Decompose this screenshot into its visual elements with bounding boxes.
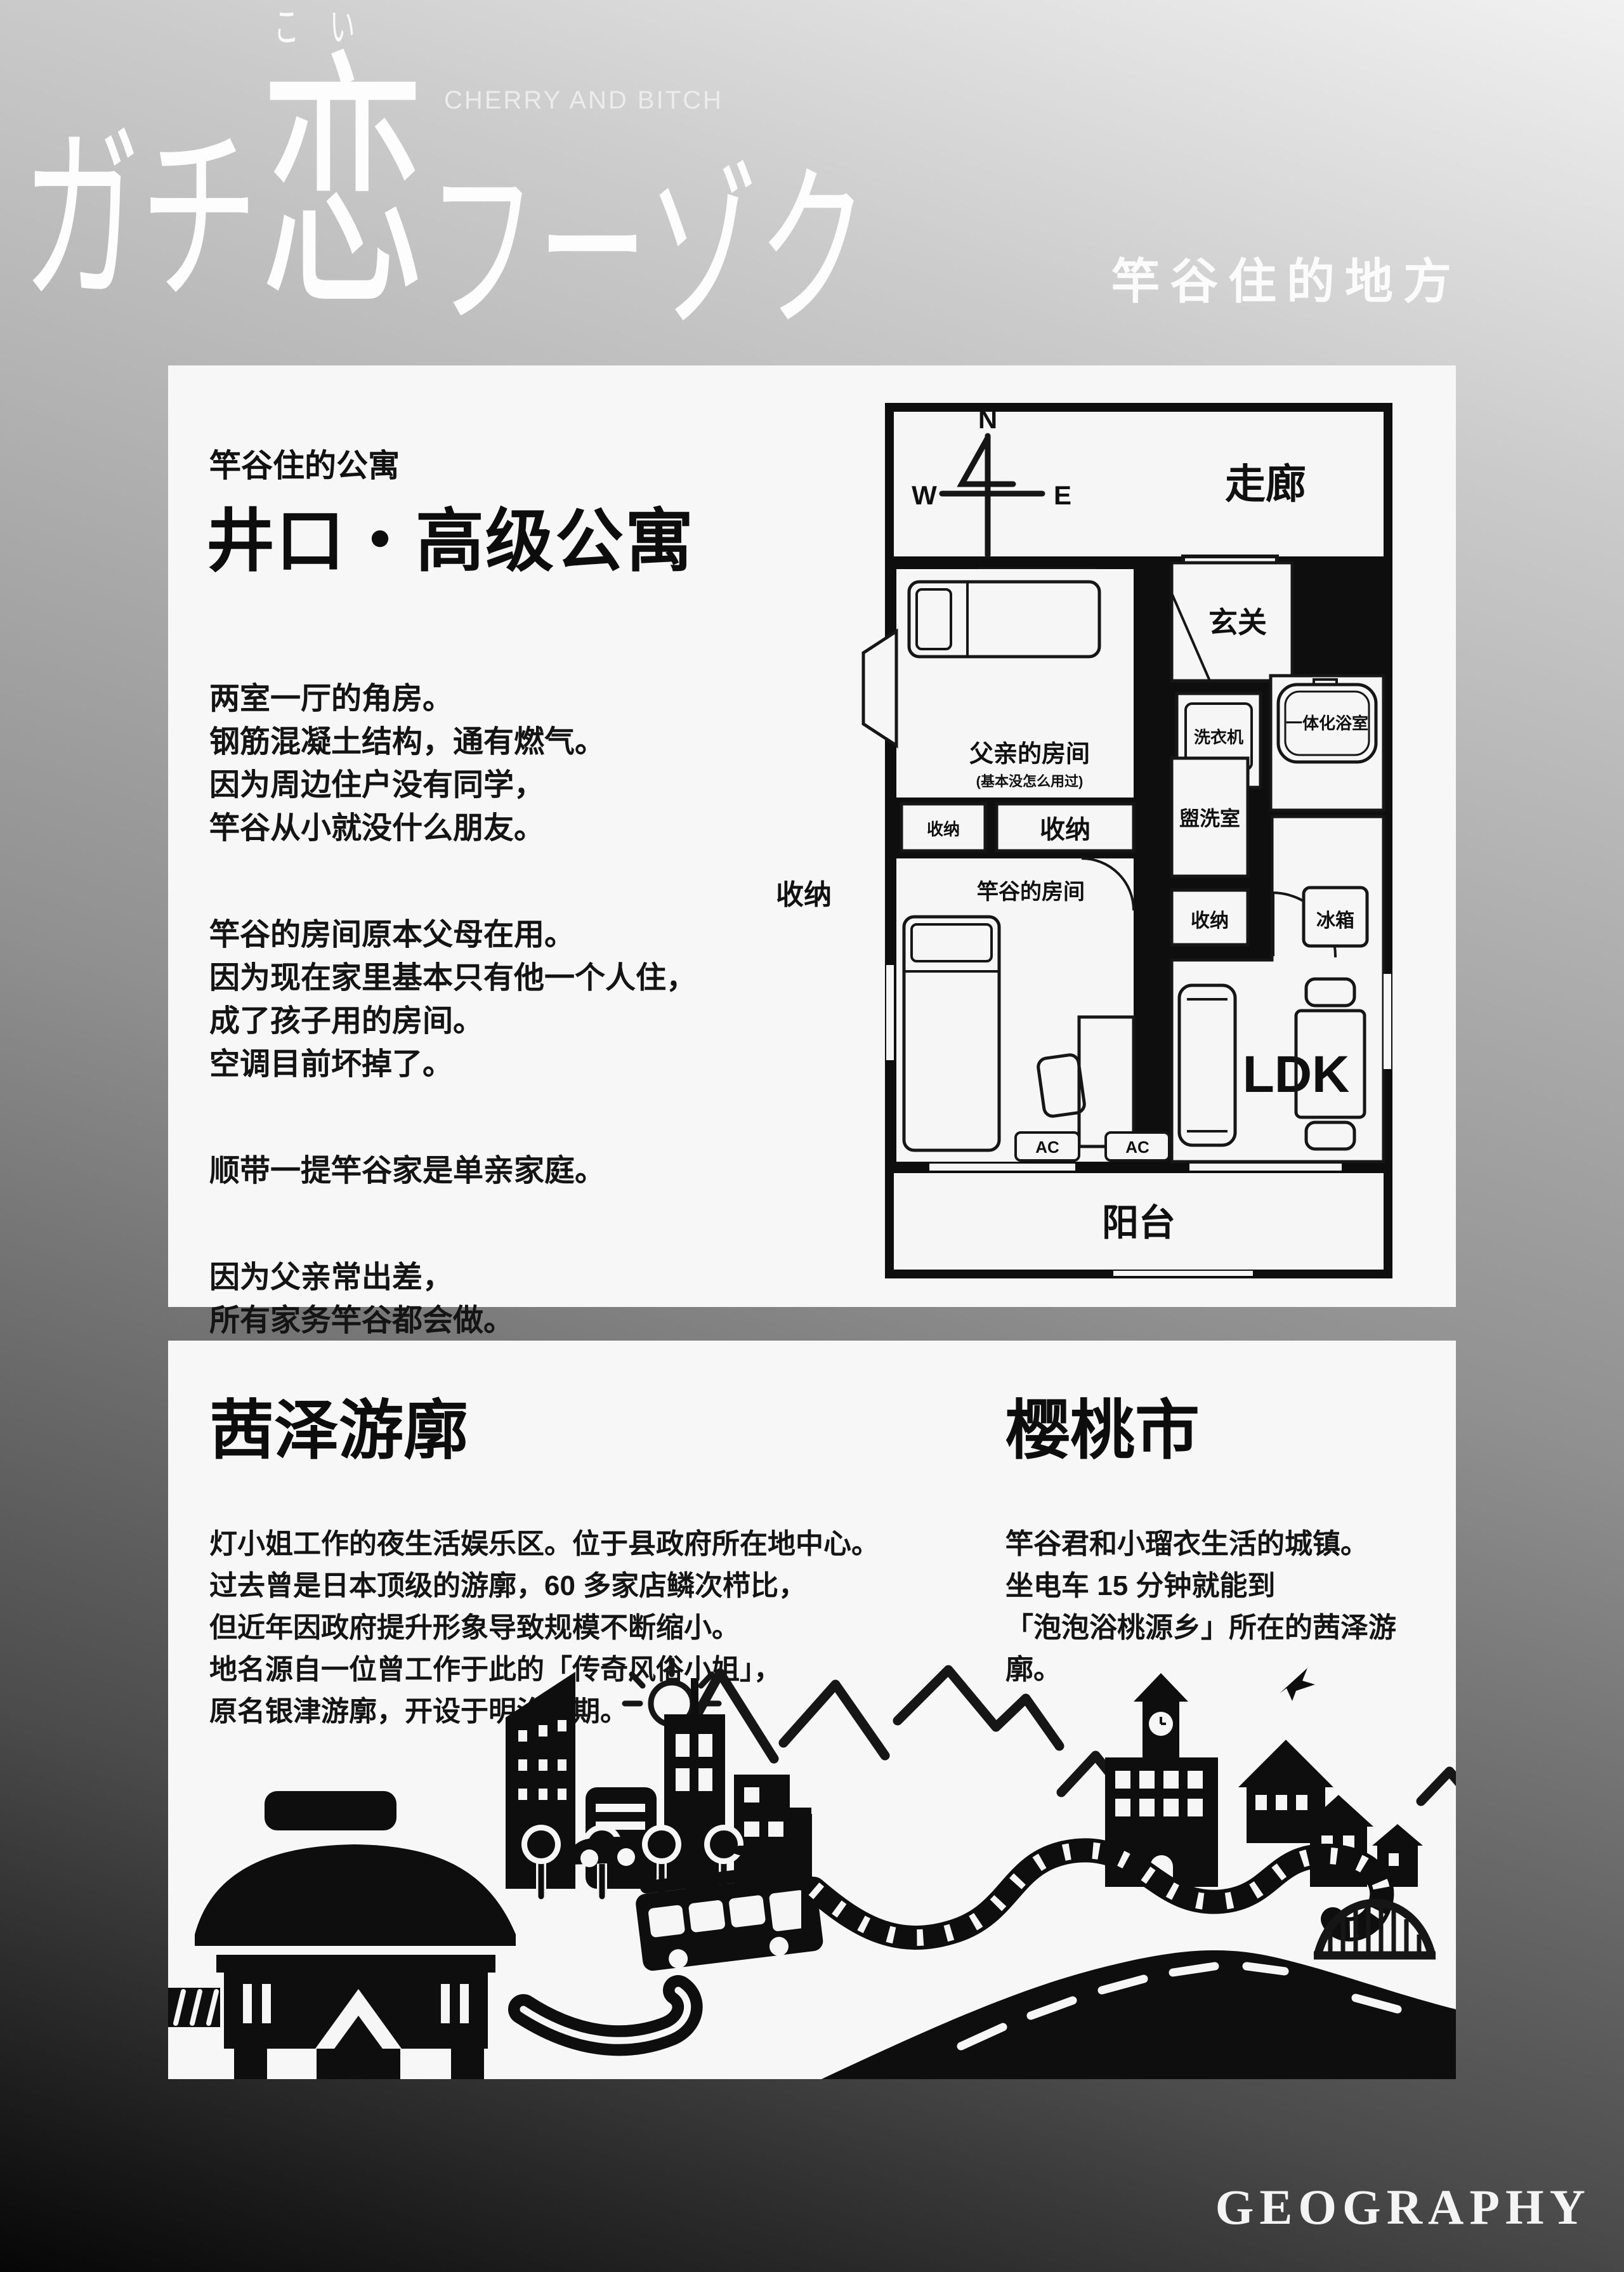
town-illustration: ♨ xyxy=(168,1635,1456,2079)
logo-part3: フーゾク xyxy=(428,162,868,339)
svg-text:(基本没怎么用过): (基本没怎么用过) xyxy=(976,773,1084,789)
winding-road xyxy=(814,1850,1382,1938)
svg-text:W: W xyxy=(912,480,937,510)
floorplan: 走廊 N S W E xyxy=(885,403,1392,1278)
closet-hall: 收纳 xyxy=(1172,890,1248,945)
city-title: 樱桃市 xyxy=(1005,1379,1200,1472)
unit-bath-room: 一体化浴室 xyxy=(1271,676,1384,810)
footer-geography-label: GEOGRAPHY xyxy=(1215,2179,1591,2236)
svg-text:AC: AC xyxy=(1035,1138,1059,1157)
svg-text:走廊: 走廊 xyxy=(1225,461,1306,507)
svg-text:收纳: 收纳 xyxy=(1191,910,1229,931)
closet-big: 收纳 xyxy=(997,804,1134,851)
bathhouse-path xyxy=(523,1990,688,2040)
road-stub xyxy=(168,1988,220,2027)
svg-text:一体化浴室: 一体化浴室 xyxy=(1286,714,1368,733)
poster-page: ガチ こい 恋 フーゾク CHERRY AND BITCH 竿谷住的地方 竿谷住… xyxy=(0,0,1624,2272)
svg-text:盥洗室: 盥洗室 xyxy=(1179,807,1240,830)
closet-father: 收纳 xyxy=(901,804,985,851)
logo-subtitle: CHERRY AND BITCH xyxy=(444,86,723,115)
logo-part1: ガチ xyxy=(22,124,258,314)
svg-text:玄关: 玄关 xyxy=(1208,606,1267,639)
district-card: 茜泽游廓 灯小姐工作的夜生活娱乐区。位于县政府所在地中心。 过去曾是日本顶级的游… xyxy=(168,1341,1456,2079)
apartment-paragraph-1: 两室一厅的角房。 钢筋混凝土结构，通有燃气。 因为周边住户没有同学， 竿谷从小就… xyxy=(209,678,875,850)
bathhouse: ♨ xyxy=(195,1791,516,2079)
svg-text:收纳: 收纳 xyxy=(927,820,960,839)
svg-text:收纳: 收纳 xyxy=(1040,816,1090,844)
fridge: 冰箱 xyxy=(1304,888,1367,946)
apartment-kicker: 竿谷住的公寓 xyxy=(209,440,400,486)
apartment-card: 竿谷住的公寓 井口・高级公寓 两室一厅的角房。 钢筋混凝土结构，通有燃气。 因为… xyxy=(168,365,1456,1307)
father-room: 父亲的房间 (基本没怎么用过) xyxy=(863,569,1134,798)
onsen-mark-icon: ♨ xyxy=(344,2048,374,2079)
floorplan-outside-storage-label: 收纳 xyxy=(776,872,832,912)
logo-tagline: 竿谷住的地方 xyxy=(1111,242,1462,312)
apartment-paragraph-3: 顺带一提竿谷家是单亲家庭。 xyxy=(209,1150,875,1193)
yukaku-title: 茜泽游廓 xyxy=(209,1379,468,1472)
svg-text:冰箱: 冰箱 xyxy=(1316,910,1354,931)
logo-part2-wrap: こい 恋 xyxy=(258,51,428,324)
main-road xyxy=(822,1950,1456,2079)
saotani-room: 竿谷的房间 xyxy=(896,858,1134,1162)
apartment-paragraph-2: 竿谷的房间原本父母在用。 因为现在家里基本只有他一个人住， 成了孩子用的房间。 … xyxy=(209,914,875,1086)
logo-furigana: こい xyxy=(274,8,386,48)
svg-text:E: E xyxy=(1054,480,1071,510)
svg-text:阳台: 阳台 xyxy=(1102,1202,1175,1244)
entrance-room: 玄关 xyxy=(1172,563,1292,681)
airplane-icon xyxy=(1280,1668,1315,1701)
logo-part2: 恋 xyxy=(258,51,428,324)
svg-text:N: N xyxy=(978,404,997,434)
svg-text:洗衣机: 洗衣机 xyxy=(1194,728,1243,747)
svg-text:父亲的房间: 父亲的房间 xyxy=(969,741,1090,768)
washroom: 盥洗室 xyxy=(1172,758,1248,876)
apartment-title: 井口・高级公寓 xyxy=(206,486,695,585)
svg-text:竿谷的房间: 竿谷的房间 xyxy=(977,880,1085,904)
svg-text:AC: AC xyxy=(1125,1138,1149,1157)
